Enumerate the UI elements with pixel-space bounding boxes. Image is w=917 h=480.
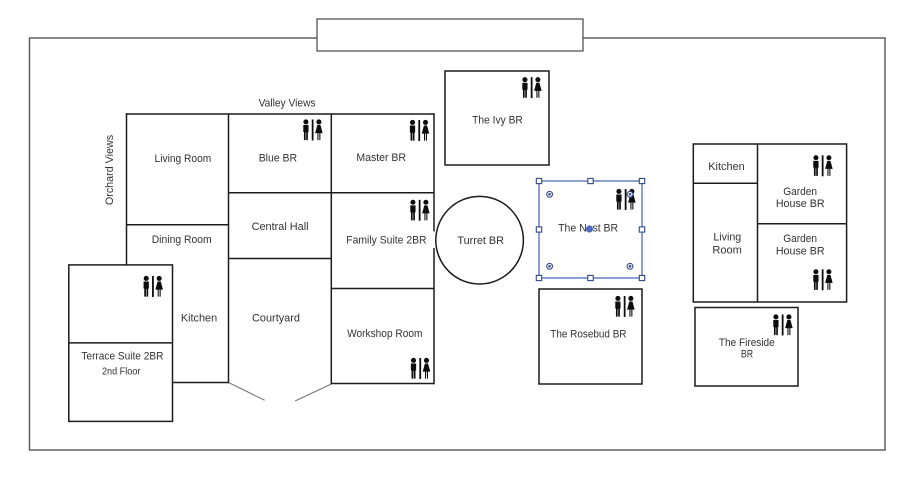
svg-text:House BR: House BR [776, 198, 825, 210]
svg-text:Orchard Views: Orchard Views [104, 135, 116, 205]
svg-text:Central Hall: Central Hall [252, 221, 309, 233]
svg-text:Courtyard: Courtyard [252, 312, 300, 324]
svg-text:BR: BR [741, 348, 753, 360]
svg-text:2nd Floor: 2nd Floor [102, 366, 141, 377]
svg-text:Master BR: Master BR [356, 152, 406, 164]
svg-text:Valley Views: Valley Views [259, 97, 316, 109]
svg-text:Blue BR: Blue BR [259, 153, 297, 165]
svg-text:Kitchen: Kitchen [181, 312, 217, 324]
svg-text:Turret BR: Turret BR [457, 235, 504, 247]
svg-text:The Fireside: The Fireside [719, 337, 775, 349]
svg-text:Living: Living [713, 231, 741, 243]
svg-text:The Rosebud BR: The Rosebud BR [550, 328, 626, 340]
svg-text:Terrace Suite 2BR: Terrace Suite 2BR [81, 351, 163, 363]
svg-text:Workshop Room: Workshop Room [347, 328, 422, 340]
svg-text:Kitchen: Kitchen [708, 161, 745, 173]
svg-text:Dining Room: Dining Room [152, 234, 212, 246]
svg-text:Garden: Garden [783, 186, 817, 198]
svg-text:Family Suite 2BR: Family Suite 2BR [346, 234, 426, 246]
svg-text:The Ivy BR: The Ivy BR [472, 115, 523, 127]
svg-text:Room: Room [712, 244, 742, 256]
svg-text:Living Room: Living Room [155, 153, 212, 165]
svg-text:Garden: Garden [783, 233, 817, 245]
svg-text:House BR: House BR [776, 245, 825, 257]
